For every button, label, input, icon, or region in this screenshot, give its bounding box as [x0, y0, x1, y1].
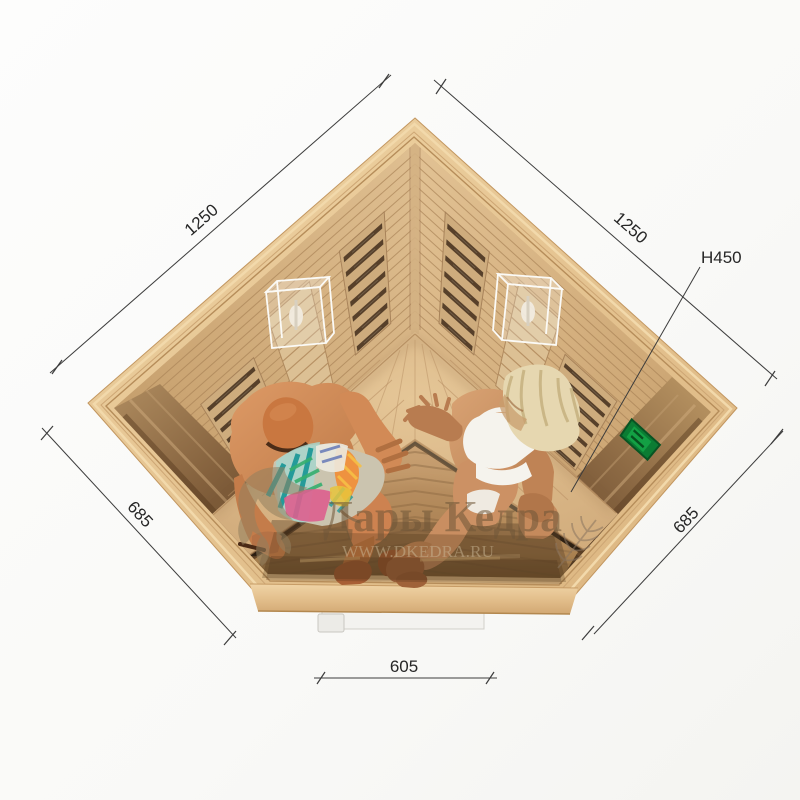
- svg-text:H450: H450: [701, 248, 742, 267]
- svg-text:605: 605: [390, 657, 418, 676]
- svg-text:WWW.DKEDRA.RU: WWW.DKEDRA.RU: [342, 542, 494, 561]
- svg-text:Дары Кедра: Дары Кедра: [323, 492, 562, 541]
